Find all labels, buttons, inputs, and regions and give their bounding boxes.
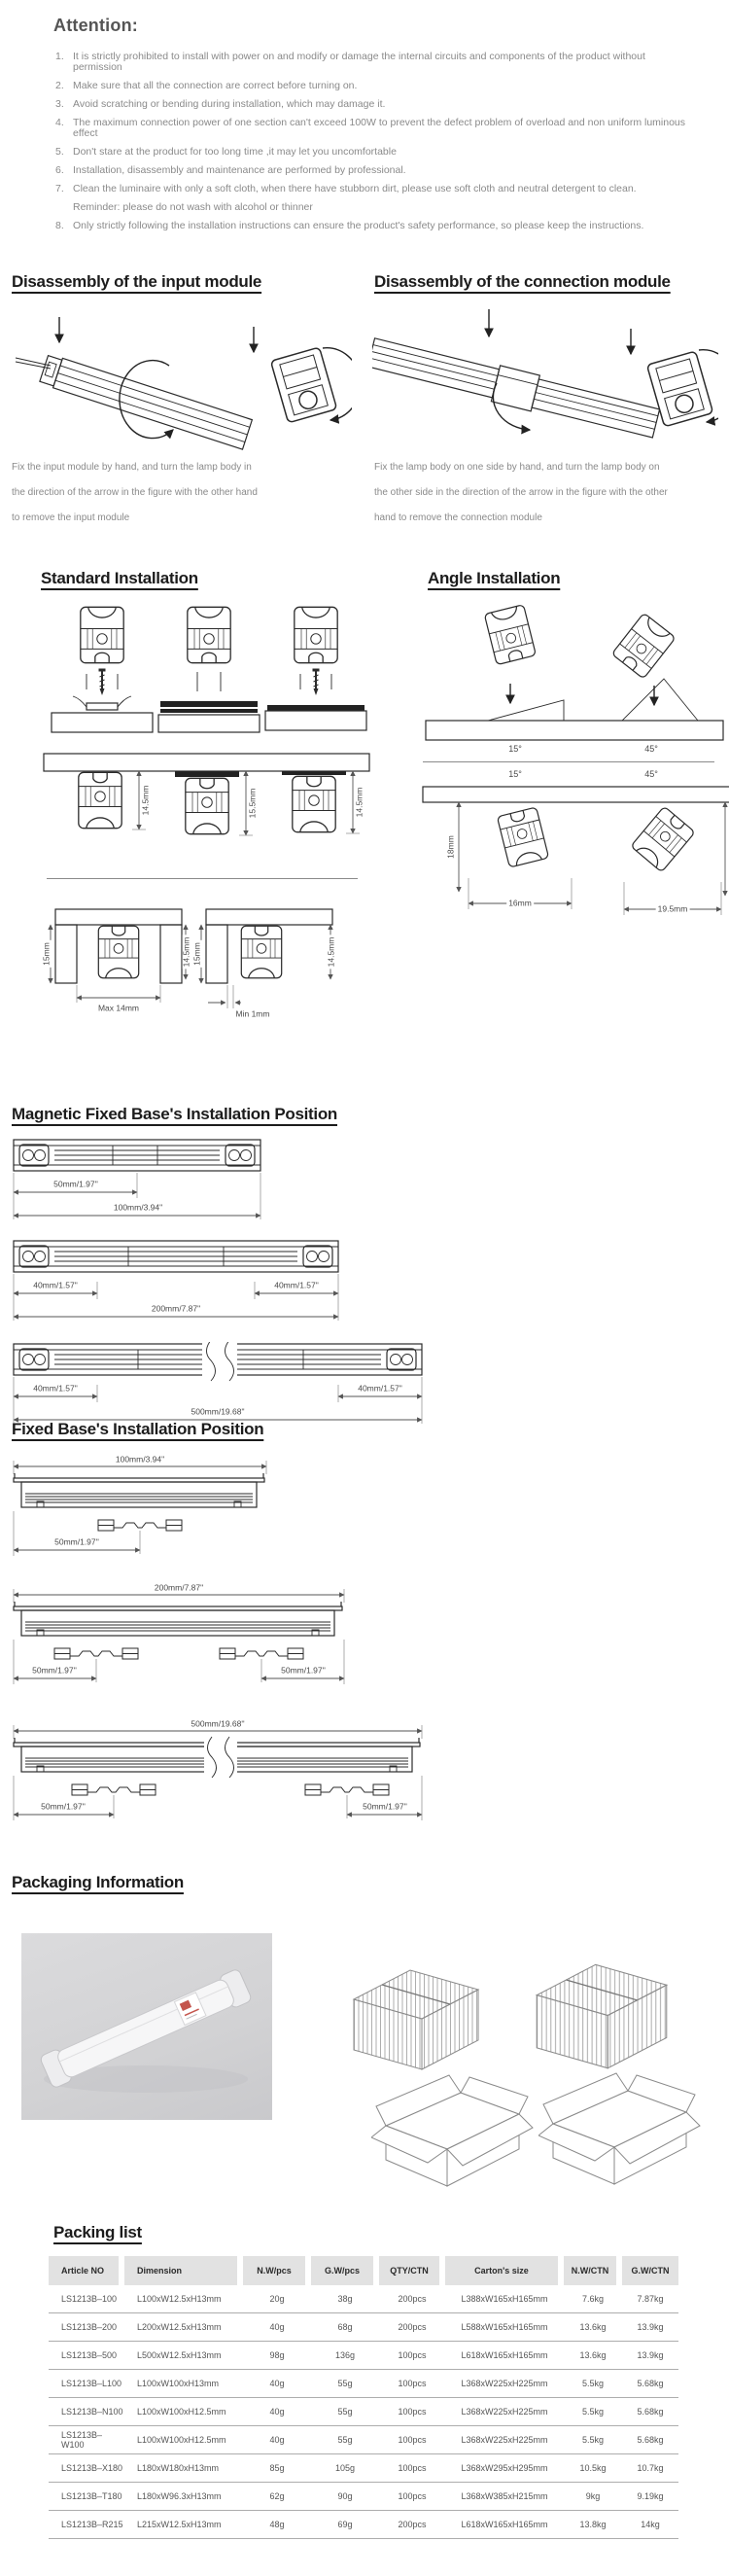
cell-article-no: LS1213B–L100 [49, 2370, 124, 2398]
dim-label: 40mm/1.57" [31, 1385, 80, 1394]
dim-label: 19.5mm [656, 905, 690, 914]
angle-wedge-45 [622, 679, 698, 721]
ceiling-surface [55, 909, 182, 925]
table-row: LS1213B–X180 L180xW180xH13mm 85g 105g 10… [49, 2454, 678, 2483]
attention-item-text: The maximum connection power of one sect… [73, 117, 685, 139]
table-row: LS1213B–100 L100xW12.5xH13mm 20g 38g 200… [49, 2285, 678, 2313]
mounting-clip [188, 607, 230, 662]
lamp-profile-body [21, 1610, 334, 1636]
cell-dimension: L180xW96.3xH13mm [124, 2483, 243, 2511]
fixed-mounting-clip [54, 1648, 138, 1659]
standard-installation-title: Standard Installation [41, 569, 198, 588]
input-module-detail [270, 347, 336, 423]
table-row: LS1213B–200 L200xW12.5xH13mm 40g 68g 200… [49, 2313, 678, 2342]
cell-qty-ctn: 100pcs [379, 2398, 445, 2426]
cell-dimension: L180xW180xH13mm [124, 2454, 243, 2483]
table-row: LS1213B–N100 L100xW100xH12.5mm 40g 55g 1… [49, 2398, 678, 2426]
fixed-base-500-diagram: 500mm/19.68'' 50mm/1.97'' 50mm/1.97'' [12, 1719, 439, 1834]
cell-qty-ctn: 100pcs [379, 2342, 445, 2370]
cell-carton-size: L618xW165xH165mm [445, 2511, 564, 2539]
fixed-base-100-svg [12, 1455, 303, 1564]
table-row: LS1213B–L100 L100xW100xH13mm 40g 55g 100… [49, 2370, 678, 2398]
lamp-bar [39, 354, 252, 449]
standard-installation-section: Standard Installation [39, 569, 394, 1055]
disassembly-connection-section: Disassembly of the connection module [372, 272, 722, 545]
standard-install-variants-diagram [39, 606, 379, 736]
col-header-dimension: Dimension [124, 2256, 243, 2285]
dim-label: 200mm/7.87" [150, 1305, 202, 1314]
cell-carton-size: L368xW225xH225mm [445, 2426, 564, 2454]
cell-article-no: LS1213B–200 [49, 2313, 124, 2342]
attention-item: Don't stare at the product for too long … [53, 147, 690, 158]
table-row: LS1213B–T180 L180xW96.3xH13mm 62g 90g 10… [49, 2483, 678, 2511]
cell-qty-ctn: 100pcs [379, 2483, 445, 2511]
dim-label: 14.5mm [183, 935, 191, 970]
cell-qty-ctn: 200pcs [379, 2511, 445, 2539]
cell-article-no: LS1213B–W100 [49, 2426, 124, 2454]
col-header-nw-pcs: N.W/pcs [243, 2256, 311, 2285]
angle-floor-svg [418, 604, 729, 742]
cell-nw-pcs: 85g [243, 2454, 311, 2483]
lamp-bar [372, 335, 661, 441]
fixed-mounting-clip [305, 1784, 389, 1795]
carton-bundle-illustration [348, 1962, 486, 2077]
cell-nw-pcs: 40g [243, 2426, 311, 2454]
dim-label: 200mm/7.87" [153, 1584, 205, 1593]
open-carton-illustration [538, 2067, 704, 2196]
attention-item: Clean the luminaire with only a soft clo… [53, 184, 690, 213]
attention-item: Make sure that all the connection are co… [53, 81, 690, 91]
cell-carton-size: L388xW165xH165mm [445, 2285, 564, 2313]
packaging-title: Packaging Information [12, 1873, 184, 1892]
mounted-diagram-svg [39, 752, 379, 888]
mounting-surface [52, 713, 153, 732]
side-wall [160, 925, 182, 983]
screw-icon [313, 669, 320, 696]
mounting-clip [611, 613, 676, 679]
cell-gw-pcs: 55g [311, 2370, 379, 2398]
mounting-surface [158, 715, 260, 732]
lamp-profile-body [21, 1482, 257, 1507]
dim-label: 40mm/1.57" [272, 1282, 321, 1290]
cell-gw-pcs: 90g [311, 2483, 379, 2511]
fixed-base-title: Fixed Base's Installation Position [12, 1420, 263, 1439]
dim-label: 50mm/1.97'' [39, 1803, 87, 1812]
cell-dimension: L200xW12.5xH13mm [124, 2313, 243, 2342]
ceiling-surface [206, 909, 332, 925]
mounting-clip [293, 776, 335, 831]
cell-gw-ctn: 13.9kg [622, 2313, 678, 2342]
mounting-clip [241, 926, 281, 978]
cell-nw-pcs: 48g [243, 2511, 311, 2539]
manual-page: Attention: It is strictly prohibited to … [0, 0, 729, 2576]
cell-dimension: L100xW100xH12.5mm [124, 2398, 243, 2426]
dim-label: 500mm/19.68'' [189, 1720, 246, 1729]
floor-surface [426, 721, 723, 740]
cell-gw-ctn: 13.9kg [622, 2342, 678, 2370]
angle-install-floor-diagram: 15° 45° [418, 604, 729, 758]
packing-list-title: Packing list [53, 2223, 142, 2242]
attention-item-text: Installation, disassembly and maintenanc… [73, 164, 406, 176]
dim-label: 50mm/1.97'' [279, 1667, 328, 1676]
dim-label: 14.5mm [142, 784, 151, 818]
cell-nw-ctn: 5.5kg [564, 2370, 622, 2398]
fixed-base-200-svg [12, 1583, 381, 1698]
cell-gw-pcs: 55g [311, 2398, 379, 2426]
packing-list-table: Article NO Dimension N.W/pcs G.W/pcs QTY… [49, 2256, 678, 2539]
cell-gw-pcs: 68g [311, 2313, 379, 2342]
disassembly-input-title: Disassembly of the input module [12, 272, 261, 292]
attention-item-text: Make sure that all the connection are co… [73, 80, 357, 91]
adhesive-strip [267, 705, 364, 711]
recessed-install-min-diagram: 15mm 14.5mm Min 1mm [194, 907, 340, 1022]
ceiling-surface [423, 787, 729, 802]
carton-bundle-illustration [530, 1957, 676, 2075]
angle-label: 45° [644, 744, 658, 754]
cell-gw-pcs: 105g [311, 2454, 379, 2483]
cell-carton-size: L368xW385xH215mm [445, 2483, 564, 2511]
dim-label: 50mm/1.97'' [52, 1538, 101, 1547]
dim-label: 100mm/3.94" [114, 1456, 166, 1464]
magnetic-base-section: Magnetic Fixed Base's Installation Posit… [12, 1105, 721, 1420]
standard-install-mounted-diagram: 14.5mm 15.5mm 14.5mm [39, 752, 379, 888]
fixed-mounting-clip [220, 1648, 303, 1659]
attention-item-text: Don't stare at the product for too long … [73, 146, 397, 158]
packaged-tube-svg [21, 1933, 272, 2120]
dim-label: 50mm/1.97'' [52, 1181, 100, 1189]
attention-item: The maximum connection power of one sect… [53, 118, 690, 139]
cell-gw-pcs: 69g [311, 2511, 379, 2539]
table-row: LS1213B–500 L500xW12.5xH13mm 98g 136g 10… [49, 2342, 678, 2370]
cell-nw-ctn: 7.6kg [564, 2285, 622, 2313]
mounting-clip [631, 806, 695, 872]
attention-item: Only strictly following the installation… [53, 221, 690, 231]
disassembly-input-description: Fix the input module by hand, and turn t… [12, 455, 264, 531]
col-header-carton-size: Carton's size [445, 2256, 564, 2285]
recessed-install-max-diagram: 15mm 14.5mm Max 14mm [44, 907, 190, 1022]
adhesive-strip [175, 771, 239, 777]
fixed-mounting-clip [72, 1784, 156, 1795]
angle-wedge-15 [488, 700, 564, 721]
cell-gw-ctn: 7.87kg [622, 2285, 678, 2313]
angle-install-mounted-diagram: 18mm 16mm 18.5mm 19.5mm [418, 785, 729, 921]
dim-label: 15.5mm [249, 787, 258, 821]
cell-dimension: L500xW12.5xH13mm [124, 2342, 243, 2370]
table-row: LS1213B–R215 L215xW12.5xH13mm 48g 69g 20… [49, 2511, 678, 2539]
attention-item-text: Only strictly following the installation… [73, 220, 643, 231]
cell-dimension: L100xW12.5xH13mm [124, 2285, 243, 2313]
cell-dimension: L100xW100xH12.5mm [124, 2426, 243, 2454]
col-header-gw-pcs: G.W/pcs [311, 2256, 379, 2285]
attention-title: Attention: [53, 16, 690, 36]
dim-label: Max 14mm [96, 1005, 141, 1013]
col-header-nw-ctn: N.W/CTN [564, 2256, 622, 2285]
disassembly-connection-description: Fix the lamp body on one side by hand, a… [374, 455, 676, 531]
table-row: LS1213B–W100 L100xW100xH12.5mm 40g 55g 1… [49, 2426, 678, 2454]
cell-carton-size: L368xW295xH295mm [445, 2454, 564, 2483]
break-gap [202, 1342, 237, 1381]
cell-nw-ctn: 13.6kg [564, 2313, 622, 2342]
magnetic-bar-200-diagram: 40mm/1.57" 40mm/1.57" 200mm/7.87" [12, 1239, 347, 1331]
disassembly-input-diagram [14, 309, 352, 455]
mounting-clip [186, 778, 228, 833]
side-wall [55, 925, 77, 983]
angle-label: 15° [508, 744, 522, 754]
dim-label: 18mm [447, 833, 456, 861]
cell-qty-ctn: 200pcs [379, 2285, 445, 2313]
angle-label: 15° [508, 769, 522, 779]
mounting-clip [79, 772, 121, 828]
dim-label: 50mm/1.97'' [30, 1667, 79, 1676]
cell-nw-pcs: 40g [243, 2398, 311, 2426]
dim-label: 100mm/3.94" [112, 1204, 164, 1213]
cell-dimension: L215xW12.5xH13mm [124, 2511, 243, 2539]
cell-article-no: LS1213B–R215 [49, 2511, 124, 2539]
dim-label: 15mm [193, 940, 202, 968]
angle-installation-title: Angle Installation [428, 569, 560, 588]
attention-item: Avoid scratching or bending during insta… [53, 99, 690, 110]
mounting-surface [265, 711, 366, 730]
ceiling-surface [44, 754, 369, 771]
fixed-base-200-diagram: 200mm/7.87" 50mm/1.97'' 50mm/1.97'' [12, 1583, 381, 1698]
cell-gw-pcs: 136g [311, 2342, 379, 2370]
cell-article-no: LS1213B–N100 [49, 2398, 124, 2426]
cell-gw-ctn: 5.68kg [622, 2370, 678, 2398]
mounting-clip [497, 807, 548, 867]
cell-qty-ctn: 100pcs [379, 2454, 445, 2483]
col-header-gw-ctn: G.W/CTN [622, 2256, 678, 2285]
disassembly-input-section: Disassembly of the input module Fix the … [10, 272, 360, 545]
attention-item-text: Clean the luminaire with only a soft clo… [73, 183, 637, 194]
cell-article-no: LS1213B–T180 [49, 2483, 124, 2511]
adhesive-strip [282, 771, 346, 775]
cell-article-no: LS1213B–100 [49, 2285, 124, 2313]
cell-nw-ctn: 13.6kg [564, 2342, 622, 2370]
divider [47, 878, 358, 879]
dim-label: 50mm/1.97'' [361, 1803, 409, 1812]
cell-gw-ctn: 10.7kg [622, 2454, 678, 2483]
open-carton-illustration [371, 2069, 537, 2198]
screw-icon [99, 669, 106, 696]
attention-item: It is strictly prohibited to install wit… [53, 52, 690, 73]
mounting-clip [295, 607, 337, 662]
dim-label: 40mm/1.57" [31, 1282, 80, 1290]
cell-carton-size: L618xW165xH165mm [445, 2342, 564, 2370]
attention-section: Attention: It is strictly prohibited to … [53, 16, 690, 239]
mounting-clip [81, 607, 123, 662]
col-header-qty-ctn: QTY/CTN [379, 2256, 445, 2285]
attention-item-text: It is strictly prohibited to install wit… [73, 51, 645, 73]
cell-gw-pcs: 55g [311, 2426, 379, 2454]
attention-reminder: Reminder: please do not wash with alcoho… [73, 202, 690, 213]
fixed-base-section: Fixed Base's Installation Position [12, 1420, 721, 1848]
cell-gw-ctn: 5.68kg [622, 2426, 678, 2454]
dim-label: 40mm/1.57" [356, 1385, 404, 1394]
magnetic-base-title: Magnetic Fixed Base's Installation Posit… [12, 1105, 337, 1124]
dim-label: 14.5mm [356, 786, 364, 820]
dim-label: 14.5mm [328, 935, 336, 970]
cell-carton-size: L368xW225xH225mm [445, 2398, 564, 2426]
angle-mounted-svg [418, 785, 729, 921]
magnetic-bar-100-diagram: 50mm/1.97'' 100mm/3.94" [12, 1138, 284, 1230]
attention-list: It is strictly prohibited to install wit… [53, 52, 690, 231]
cell-nw-pcs: 20g [243, 2285, 311, 2313]
cell-gw-pcs: 38g [311, 2285, 379, 2313]
fixed-base-500-svg [12, 1719, 439, 1834]
fixed-mounting-clip [98, 1520, 182, 1531]
cell-qty-ctn: 100pcs [379, 2426, 445, 2454]
col-header-article-no: Article NO [49, 2256, 124, 2285]
adhesive-strip [160, 701, 258, 707]
dim-label: 16mm [506, 900, 534, 908]
cell-carton-size: L368xW225xH225mm [445, 2370, 564, 2398]
cell-nw-pcs: 40g [243, 2370, 311, 2398]
cell-nw-pcs: 98g [243, 2342, 311, 2370]
mounting-clip [484, 605, 536, 665]
cell-carton-size: L588xW165xH165mm [445, 2313, 564, 2342]
fixed-base-100-diagram: 100mm/3.94" 50mm/1.97'' [12, 1455, 303, 1564]
cell-nw-ctn: 5.5kg [564, 2426, 622, 2454]
table-header-row: Article NO Dimension N.W/pcs G.W/pcs QTY… [49, 2256, 678, 2285]
cell-gw-ctn: 14kg [622, 2511, 678, 2539]
divider [423, 761, 714, 762]
angle-label: 45° [644, 769, 658, 779]
cell-qty-ctn: 100pcs [379, 2370, 445, 2398]
attention-item: Installation, disassembly and maintenanc… [53, 165, 690, 176]
break-gap [204, 1739, 237, 1776]
cell-qty-ctn: 200pcs [379, 2313, 445, 2342]
mounting-clip [98, 926, 138, 978]
cell-nw-pcs: 40g [243, 2313, 311, 2342]
angle-installation-section: Angle Installation 15° 45° 15° 45° [418, 569, 729, 1055]
cell-gw-ctn: 9.19kg [622, 2483, 678, 2511]
disassembly-connection-title: Disassembly of the connection module [374, 272, 671, 292]
recessed-min-svg [194, 907, 340, 1022]
cell-nw-ctn: 5.5kg [564, 2398, 622, 2426]
cell-dimension: L100xW100xH13mm [124, 2370, 243, 2398]
cell-nw-ctn: 10.5kg [564, 2454, 622, 2483]
attention-item-text: Avoid scratching or bending during insta… [73, 98, 385, 110]
cell-article-no: LS1213B–500 [49, 2342, 124, 2370]
dim-label: 500mm/19.68" [190, 1408, 247, 1417]
cell-nw-pcs: 62g [243, 2483, 311, 2511]
cell-nw-ctn: 9kg [564, 2483, 622, 2511]
cell-gw-ctn: 5.68kg [622, 2398, 678, 2426]
packaged-product-photo [21, 1933, 272, 2120]
disassembly-connection-diagram [372, 307, 718, 455]
dim-label: Min 1mm [234, 1010, 272, 1019]
cell-article-no: LS1213B–X180 [49, 2454, 124, 2483]
cell-nw-ctn: 13.8kg [564, 2511, 622, 2539]
dim-label: 15mm [43, 940, 52, 968]
side-wall [206, 925, 227, 983]
